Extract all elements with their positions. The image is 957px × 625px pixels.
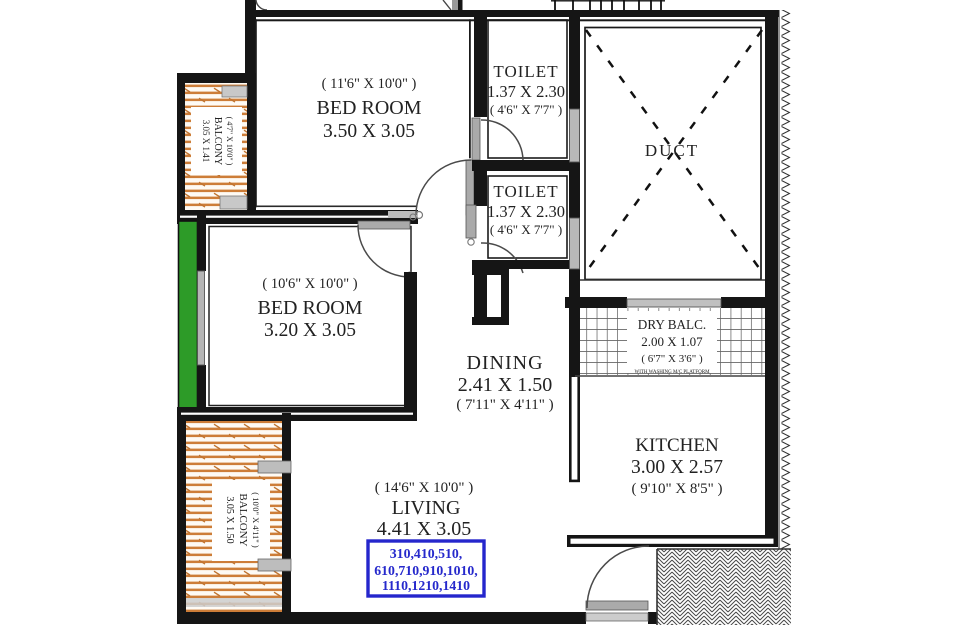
- svg-text:1110,1210,1410: 1110,1210,1410: [382, 578, 470, 593]
- svg-text:4.41 X 3.05: 4.41 X 3.05: [377, 518, 471, 540]
- svg-text:2.00 X 1.07: 2.00 X 1.07: [641, 334, 703, 349]
- svg-text:1.37 X 2.30: 1.37 X 2.30: [487, 202, 565, 221]
- svg-text:TOILET: TOILET: [493, 182, 558, 201]
- svg-text:1.37 X 2.30: 1.37 X 2.30: [487, 82, 565, 101]
- svg-text:( 11'6" X 10'0" ): ( 11'6" X 10'0" ): [322, 76, 417, 92]
- svg-text:3.20 X 3.05: 3.20 X 3.05: [264, 320, 356, 341]
- svg-text:3.05 X 1.41: 3.05 X 1.41: [201, 120, 211, 163]
- svg-text:DUCT: DUCT: [645, 141, 699, 160]
- svg-text:BALCONY: BALCONY: [237, 493, 249, 546]
- svg-text:BED ROOM: BED ROOM: [316, 97, 421, 119]
- svg-text:( 6'7" X 3'6" ): ( 6'7" X 3'6" ): [641, 353, 703, 365]
- svg-text:( 10'6" X 10'0" ): ( 10'6" X 10'0" ): [262, 276, 357, 292]
- svg-text:3.00 X 2.57: 3.00 X 2.57: [631, 457, 723, 478]
- svg-text:610,710,910,1010,: 610,710,910,1010,: [374, 563, 477, 578]
- svg-text:( 4'7" X 10'0" ): ( 4'7" X 10'0" ): [225, 117, 234, 166]
- svg-text:( 4'6" X 7'7" ): ( 4'6" X 7'7" ): [490, 222, 562, 237]
- svg-text:BALCONY: BALCONY: [212, 117, 223, 165]
- svg-text:WITH WASHING M/C PLATFORM: WITH WASHING M/C PLATFORM: [634, 370, 710, 375]
- svg-text:310,410,510,: 310,410,510,: [390, 546, 462, 561]
- svg-text:( 14'6" X 10'0" ): ( 14'6" X 10'0" ): [375, 480, 473, 496]
- svg-text:( 4'6" X 7'7" ): ( 4'6" X 7'7" ): [490, 102, 562, 117]
- svg-text:3.50 X 3.05: 3.50 X 3.05: [323, 121, 415, 142]
- svg-text:TOILET: TOILET: [493, 62, 558, 81]
- svg-text:2.41 X 1.50: 2.41 X 1.50: [458, 374, 552, 396]
- svg-text:( 9'10" X 8'5" ): ( 9'10" X 8'5" ): [632, 481, 723, 497]
- svg-text:DINING: DINING: [466, 352, 543, 374]
- svg-text:( 7'11" X 4'11" ): ( 7'11" X 4'11" ): [456, 397, 553, 413]
- svg-text:3.05 X 1.50: 3.05 X 1.50: [224, 496, 235, 543]
- svg-text:( 10'0" X 4'11" ): ( 10'0" X 4'11" ): [251, 492, 261, 548]
- svg-text:DRY BALC.: DRY BALC.: [638, 317, 706, 332]
- svg-text:BED ROOM: BED ROOM: [257, 297, 362, 319]
- svg-text:LIVING: LIVING: [392, 497, 461, 519]
- svg-text:KITCHEN: KITCHEN: [635, 435, 719, 456]
